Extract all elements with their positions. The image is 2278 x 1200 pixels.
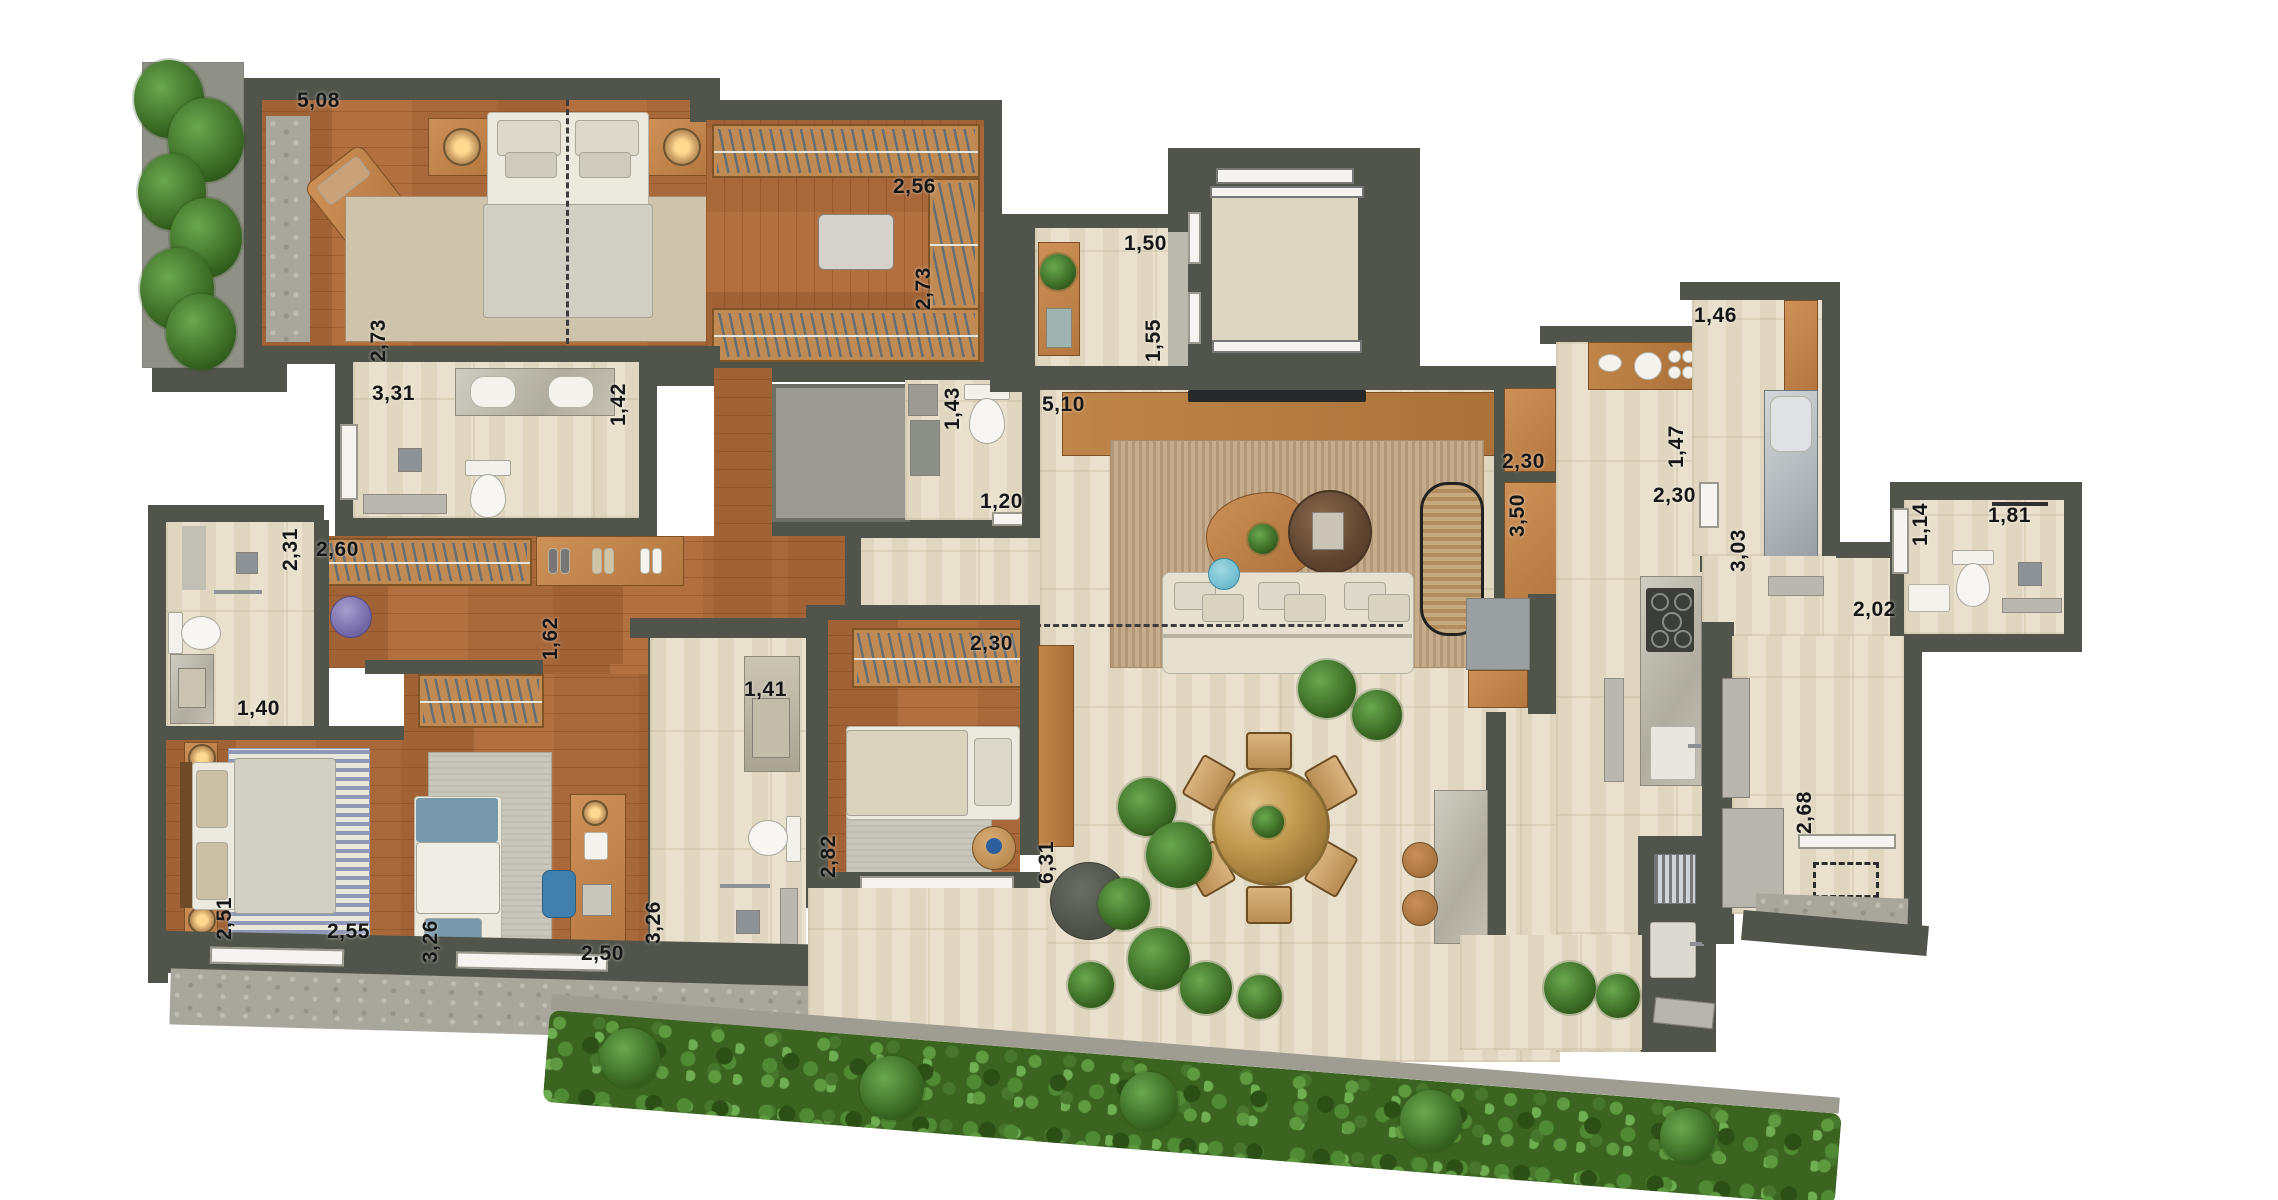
dimension-label-bedroom3-depth: 2,82: [818, 835, 839, 878]
dimension-label-kitchen-depth: 3,03: [1728, 529, 1749, 572]
dimension-label-service-room-depth: 2,68: [1794, 791, 1815, 834]
floor-plan: 5,082,732,562,733,311,421,431,201,501,55…: [0, 0, 2278, 1200]
dimension-label-kitchen-width: 2,30: [1653, 485, 1696, 506]
dimension-label-bedroom1-depth: 2,51: [214, 897, 235, 940]
dimension-label-bedroom1-width: 2,55: [327, 921, 370, 942]
dimension-label-hall-closet-width: 2,60: [316, 539, 359, 560]
dimension-label-bath4-depth: 3,26: [643, 901, 664, 944]
dimension-label-bedroom3-closet: 2,30: [970, 633, 1013, 654]
dimension-label-service-hall-width: 2,02: [1853, 599, 1896, 620]
dimension-label-closet-width: 2,56: [893, 176, 936, 197]
dimension-label-wc-width: 1,20: [980, 491, 1023, 512]
dimension-label-bedroom2-width: 2,50: [581, 943, 624, 964]
dimension-label-master-bedroom-width: 5,08: [297, 90, 340, 111]
dimension-label-master-bath-width: 3,31: [372, 383, 415, 404]
dimension-label-terrace-depth: 6,31: [1036, 841, 1057, 884]
dimension-label-living-width: 5,10: [1042, 394, 1085, 415]
dimension-label-entry-width: 1,50: [1124, 233, 1167, 254]
dimension-label-wc-depth: 1,43: [942, 387, 963, 430]
dimension-label-bath3-depth: 2,31: [280, 528, 301, 571]
dimension-label-closet-depth: 2,73: [913, 267, 934, 310]
dimension-label-master-bath-depth: 1,42: [608, 383, 629, 426]
dimension-label-niche-upper: 2,30: [1502, 451, 1545, 472]
dimension-label-bath3-width: 1,40: [237, 698, 280, 719]
dimension-label-kitchen-pass-depth: 1,47: [1666, 425, 1687, 468]
dimension-label-master-bedroom-depth: 2,73: [368, 319, 389, 362]
dimension-label-niche-lower: 3,50: [1507, 494, 1528, 537]
dimension-label-hall-corridor-width: 1,62: [540, 617, 561, 660]
dimension-label-bath4-width: 1,41: [744, 679, 787, 700]
dimension-label-laundry-width: 1,46: [1694, 305, 1737, 326]
dimension-labels-layer: 5,082,732,562,733,311,421,431,201,501,55…: [0, 0, 2278, 1200]
dimension-label-bath2-depth: 1,14: [1910, 503, 1931, 546]
dimension-label-bedroom2-depth: 3,26: [420, 920, 441, 963]
dimension-label-entry-depth: 1,55: [1143, 319, 1164, 362]
dimension-label-bath2-width: 1,81: [1988, 505, 2031, 526]
